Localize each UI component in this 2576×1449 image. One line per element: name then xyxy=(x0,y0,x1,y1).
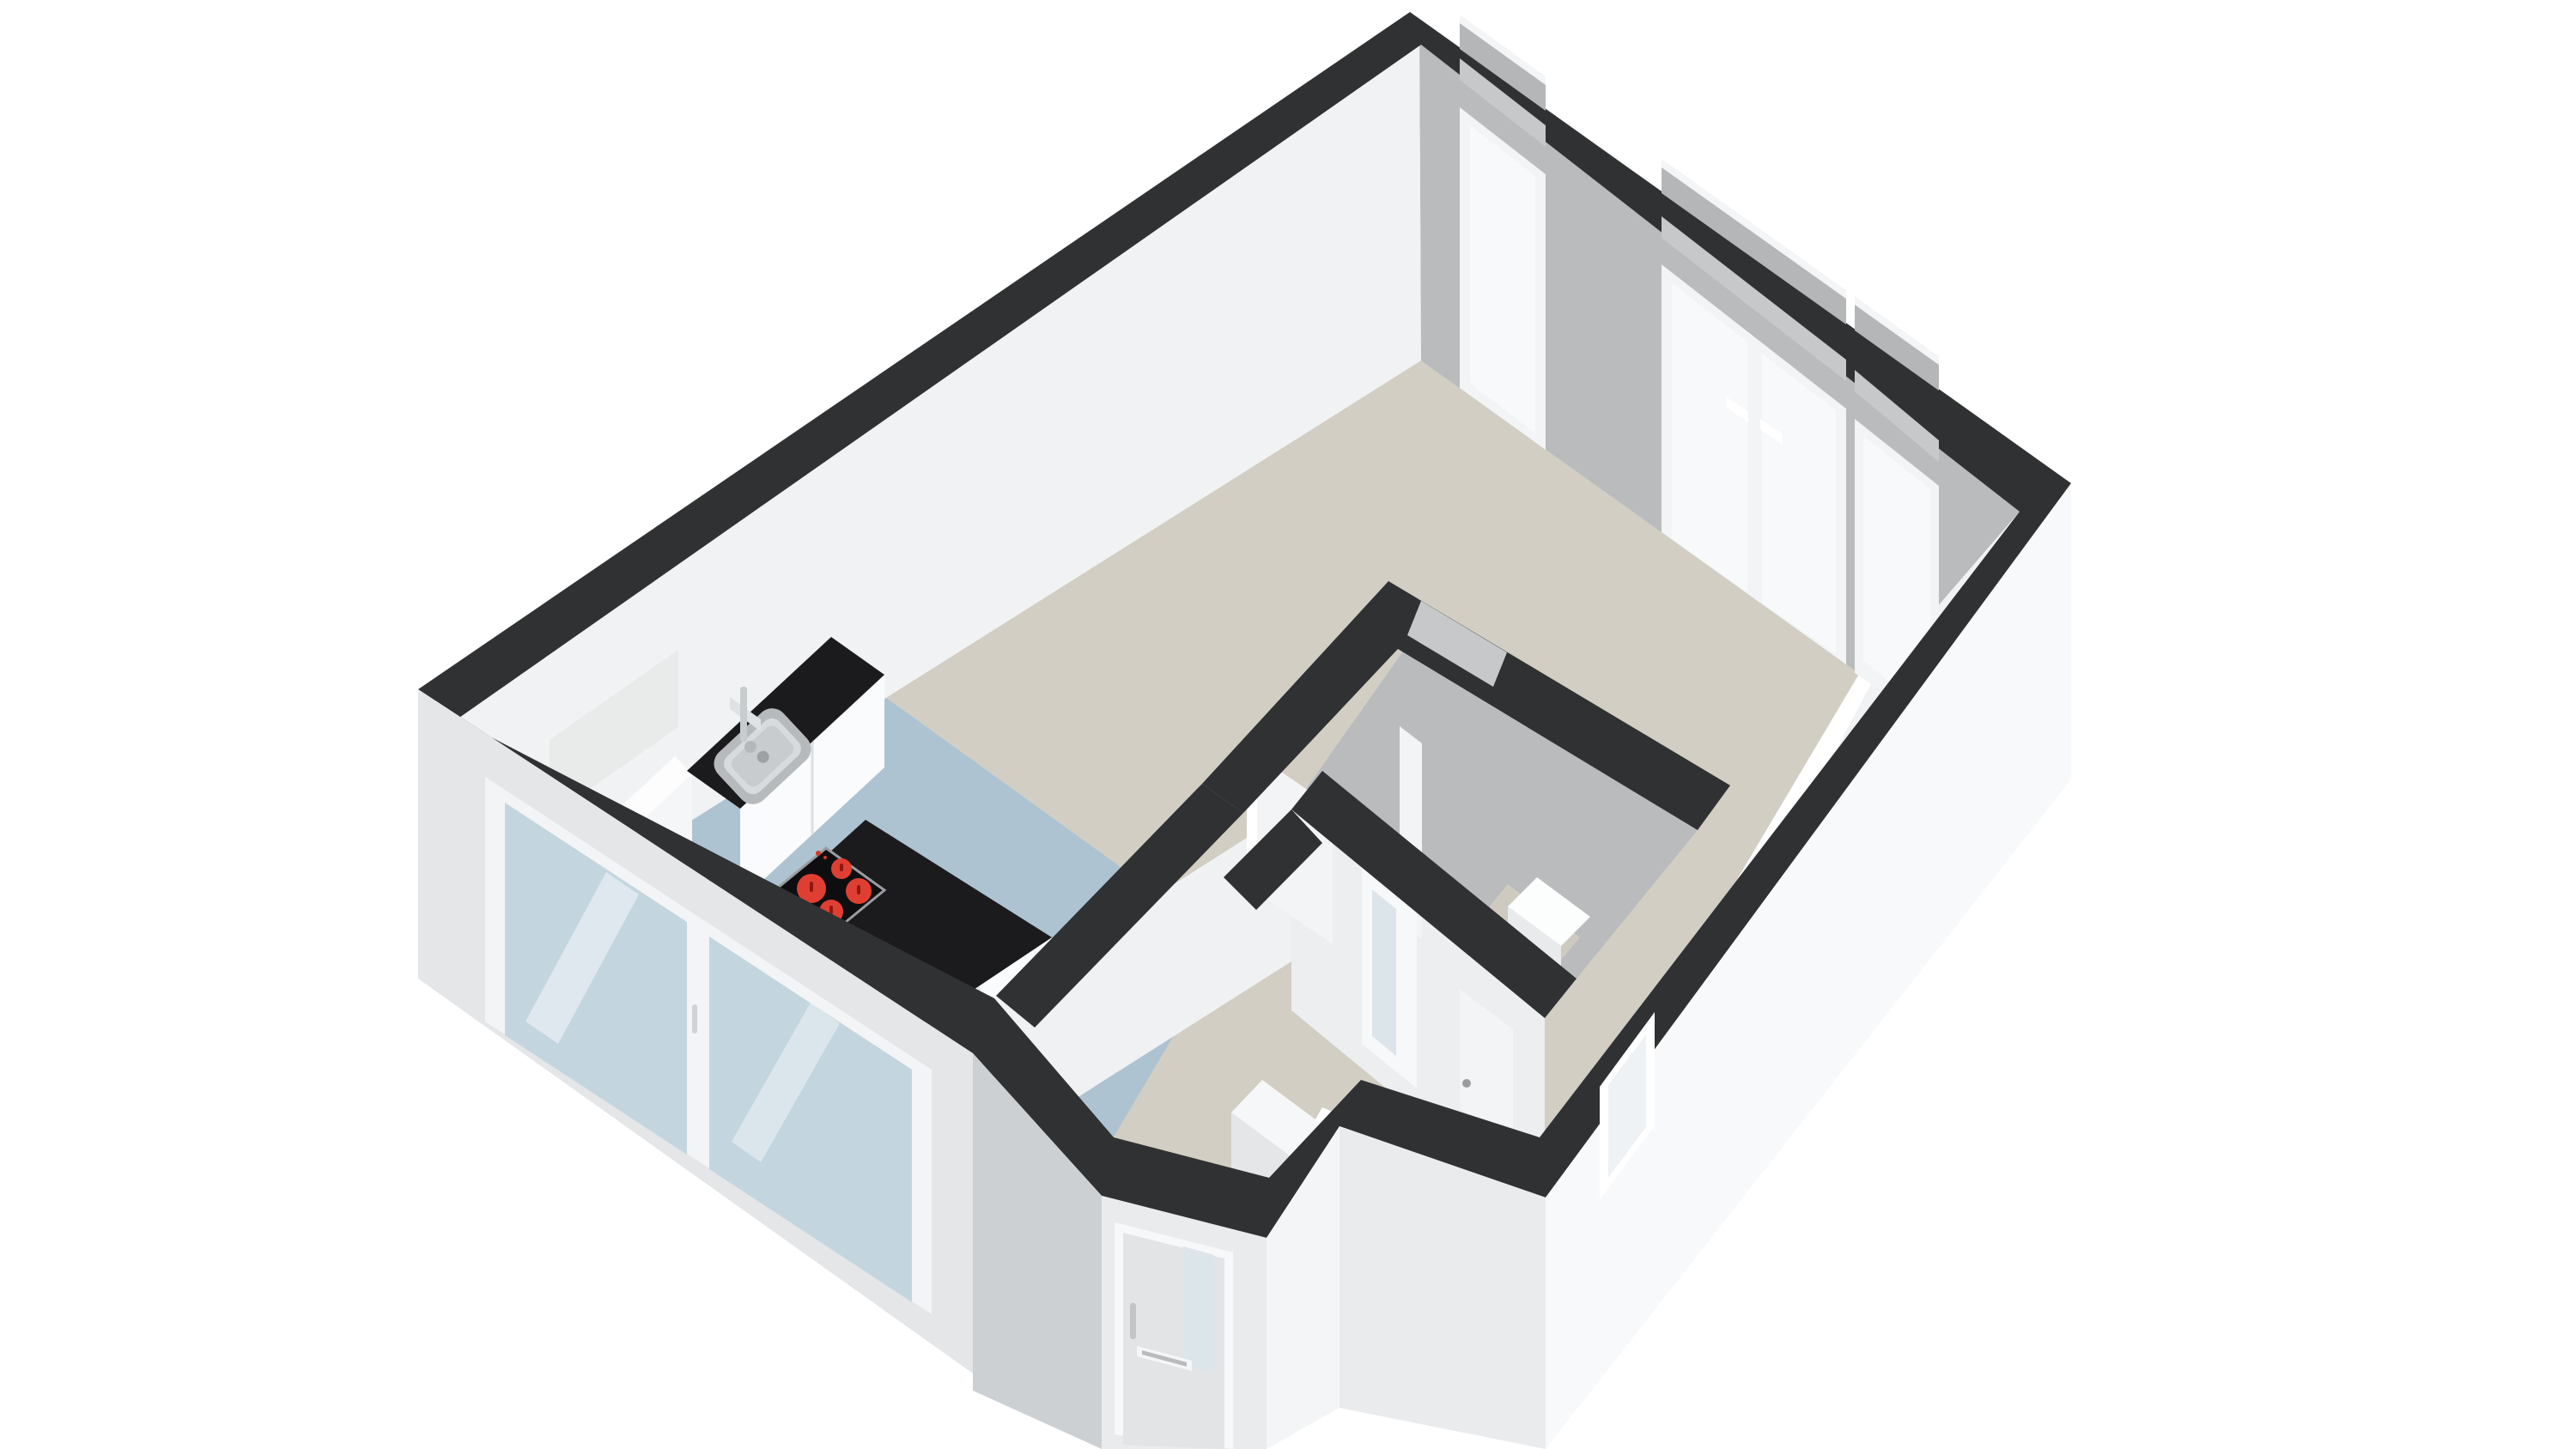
floorplan-3d-canvas[interactable] xyxy=(0,0,2576,1449)
entrance-door-glass xyxy=(1183,1246,1214,1373)
entrance-door xyxy=(1115,1222,1233,1449)
cooktop-indicator-icon xyxy=(816,851,821,856)
cooktop-indicator-icon xyxy=(823,856,827,859)
corner-door-handle-icon xyxy=(1462,1079,1471,1088)
sliding-door-handle-icon xyxy=(692,1004,697,1034)
floorplan-viewport[interactable] xyxy=(0,0,2576,1449)
frosted-door-glass xyxy=(1372,889,1396,1056)
entrance-door-handle-icon xyxy=(1130,1303,1136,1339)
window-1-glass xyxy=(1470,125,1535,433)
